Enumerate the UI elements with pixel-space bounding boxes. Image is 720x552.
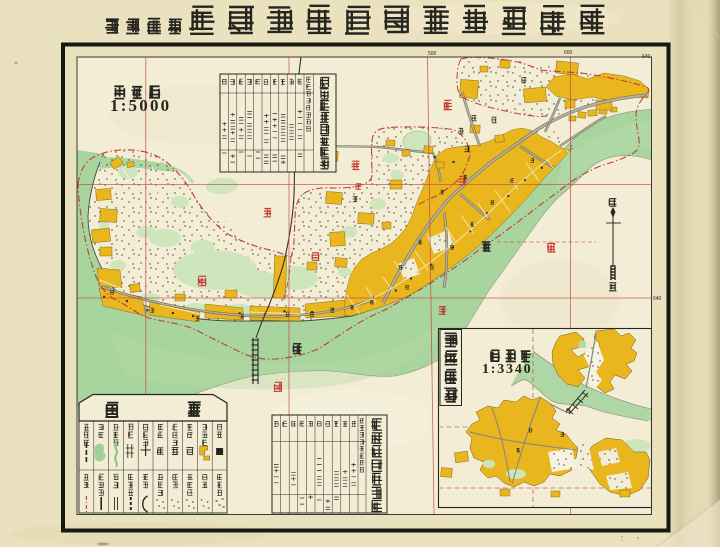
svg-text:1:3340: 1:3340	[482, 362, 532, 377]
svg-text:640: 640	[653, 296, 662, 302]
svg-text:500: 500	[428, 51, 437, 57]
svg-text:640: 640	[642, 54, 651, 60]
svg-text:600: 600	[564, 50, 573, 56]
svg-text:1:5000: 1:5000	[110, 96, 171, 115]
